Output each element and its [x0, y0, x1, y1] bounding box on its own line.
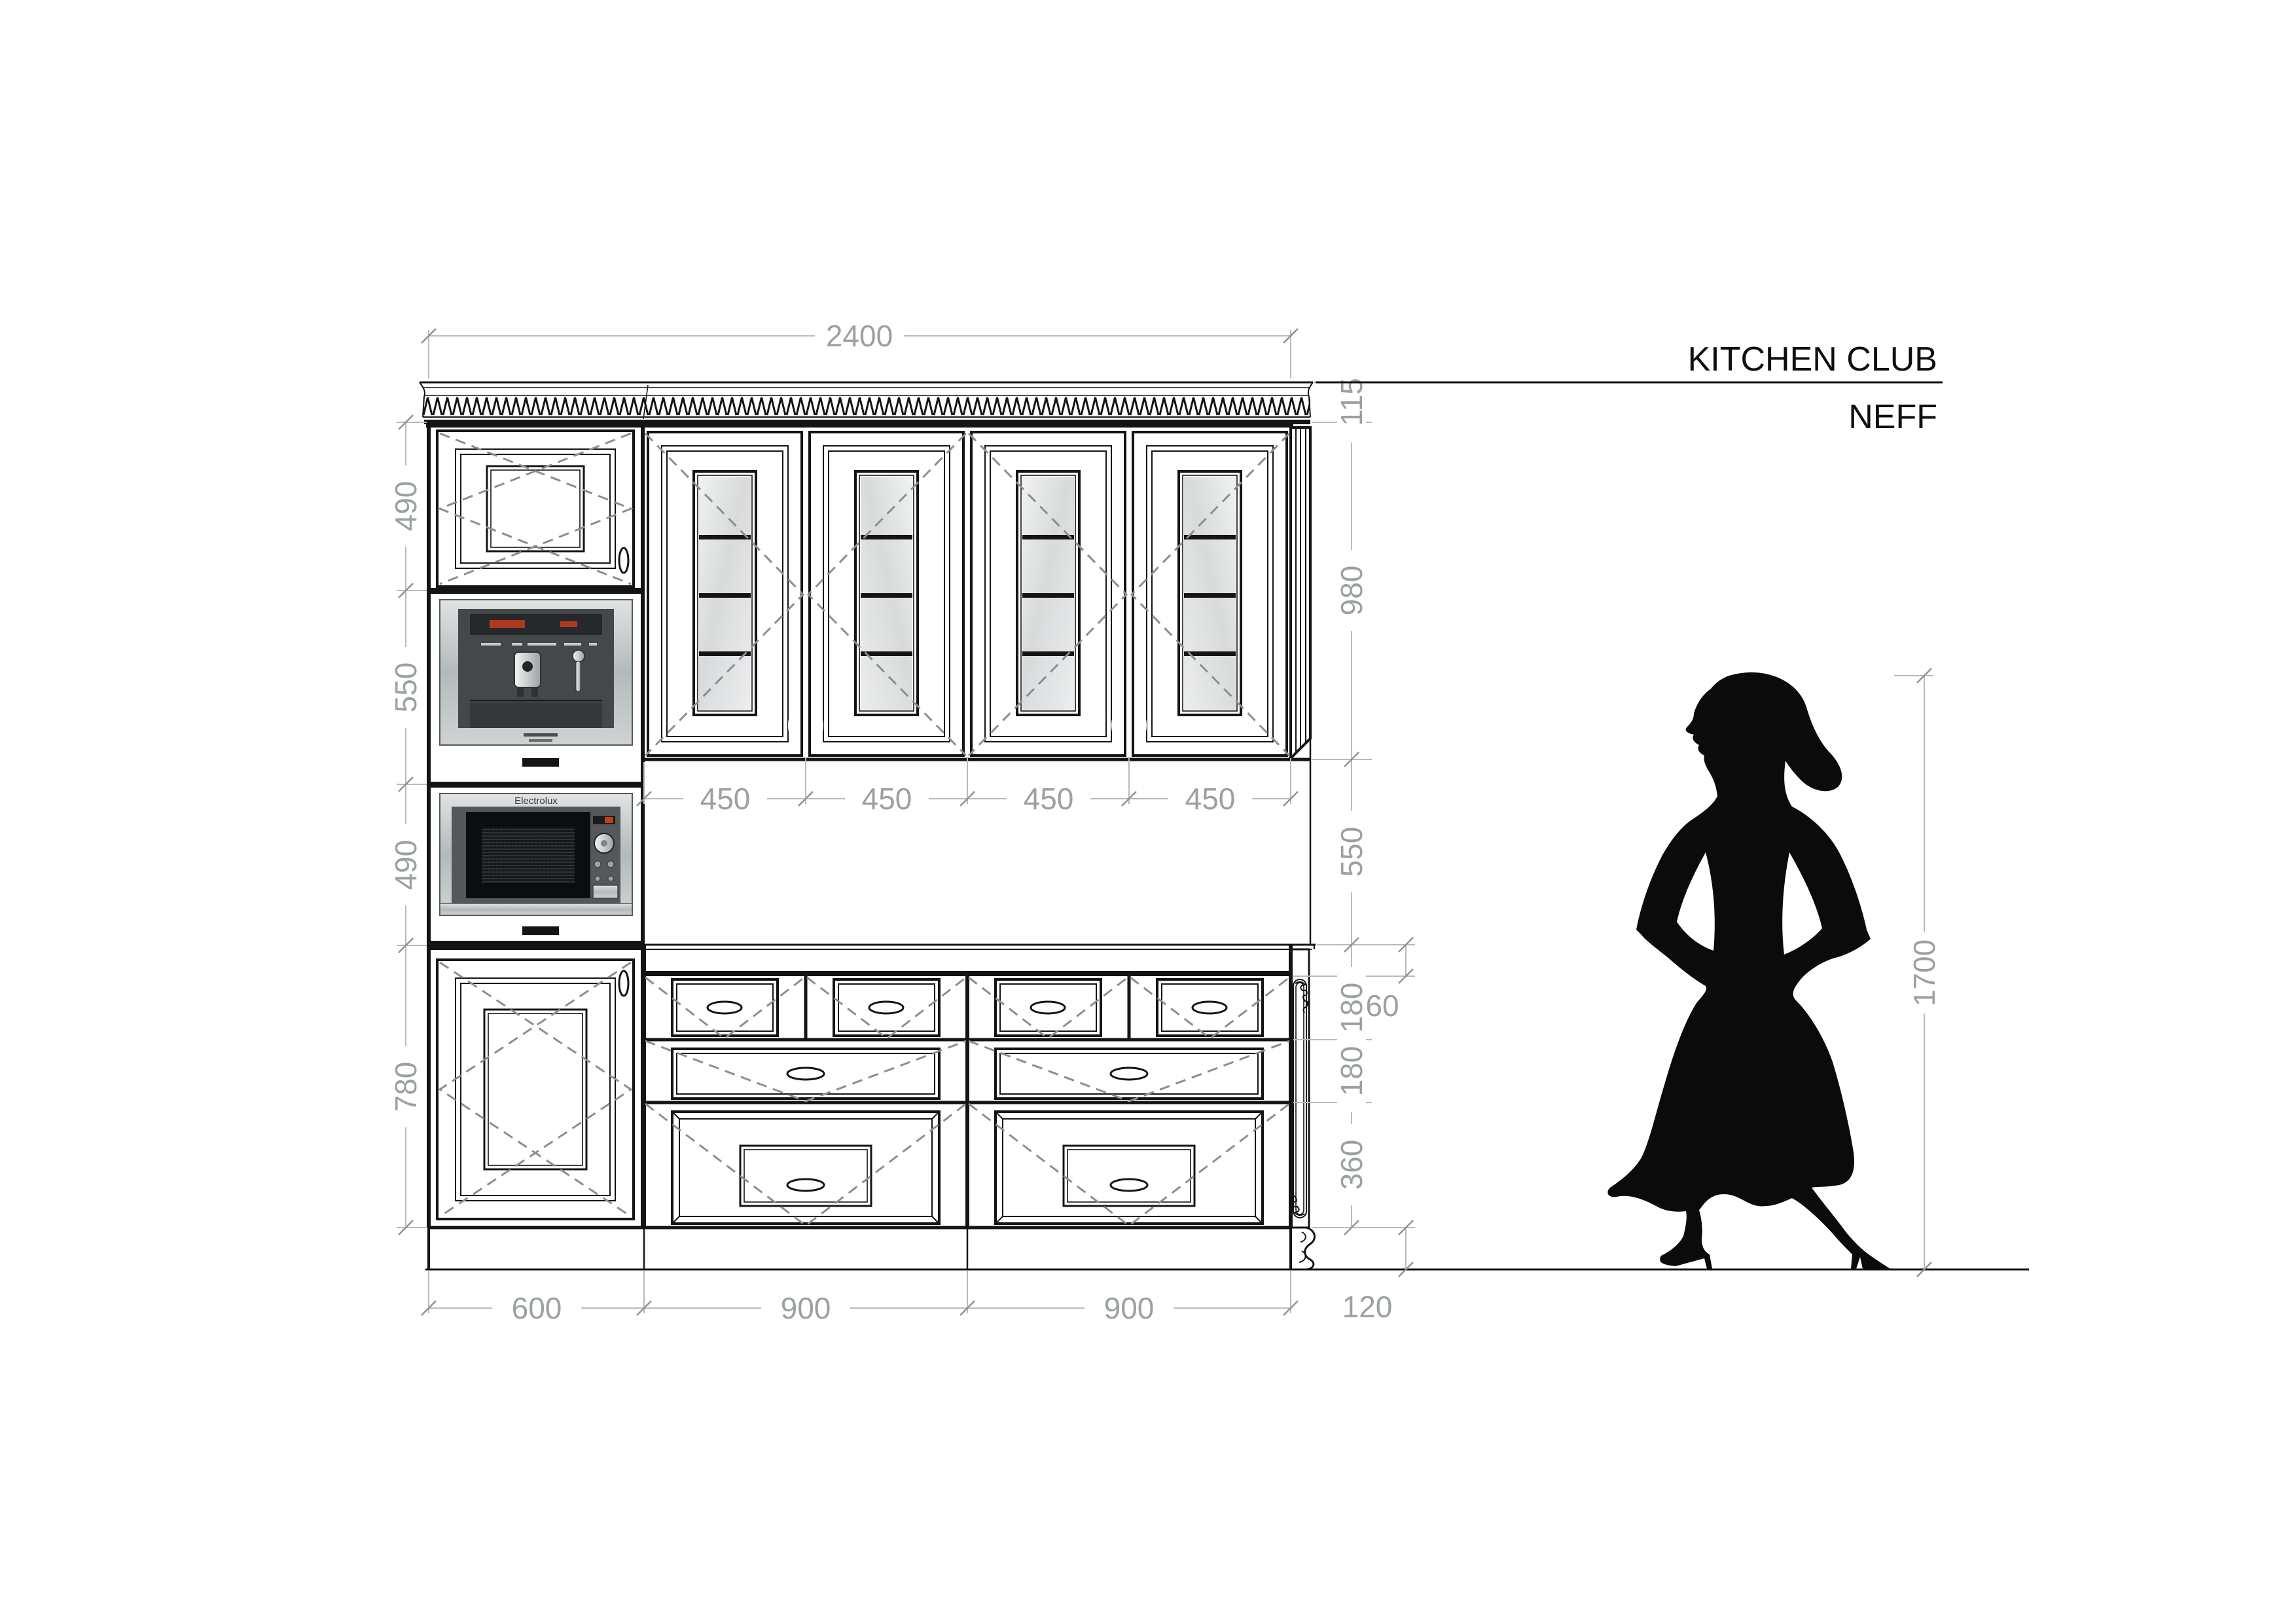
- figure: [1607, 672, 1890, 1269]
- cornice: [420, 382, 1313, 424]
- dim-cornice-height: 115: [1335, 378, 1369, 426]
- dim-wall-door-4: 450: [1185, 782, 1236, 816]
- dim-counter-thickness: 60: [1365, 989, 1399, 1023]
- dim-base-width-3: 900: [1104, 1291, 1155, 1325]
- small-drawer: [996, 979, 1101, 1036]
- dim-wall-door-3: 450: [1024, 782, 1074, 816]
- small-drawer: [834, 979, 939, 1036]
- dim-left-4: 780: [389, 1062, 423, 1112]
- glass-door-2: [810, 432, 963, 756]
- small-drawer: [1157, 979, 1263, 1036]
- dim-figure-height: 1700: [1907, 939, 1941, 1006]
- tall-unit: Electrolux: [429, 422, 643, 1228]
- glass-door-1: [648, 432, 802, 756]
- coffee-machine: [440, 600, 632, 745]
- tall-unit-base-door: [437, 960, 634, 1219]
- dim-wall-door-2: 450: [862, 782, 912, 816]
- microwave-brand-label: Electrolux: [514, 795, 558, 807]
- milk-frother: [573, 650, 584, 662]
- middle-drawer: [996, 1049, 1263, 1099]
- dim-base-width-1: 600: [512, 1291, 562, 1325]
- drawer-strip-handle: [522, 926, 559, 935]
- kitchen-elevation-page: Electrolux: [0, 0, 2296, 1623]
- small-drawer: [672, 979, 778, 1036]
- deep-drawer: [672, 1112, 939, 1224]
- glass-door-4: [1133, 432, 1287, 756]
- dim-wall-door-1: 450: [700, 782, 751, 816]
- brand-name: NEFF: [1848, 398, 1937, 436]
- dim-overall-width: 2400: [826, 319, 893, 353]
- dim-drawer-height-1: 180: [1335, 983, 1369, 1033]
- microwave-handle: [593, 885, 618, 898]
- dim-base-width-2: 900: [781, 1291, 831, 1325]
- woman-silhouette: [1607, 672, 1890, 1269]
- dentil-molding: [423, 396, 1310, 416]
- title-block: KITCHEN CLUB NEFF: [1316, 340, 1943, 436]
- dim-plinth-height: 120: [1342, 1290, 1393, 1324]
- dim-left-1: 490: [389, 481, 423, 532]
- door-handle: [619, 971, 628, 996]
- microwave: Electrolux: [440, 793, 632, 915]
- dim-left-3: 490: [389, 840, 423, 890]
- tall-unit-top-door: [437, 431, 634, 587]
- dim-splashback-height: 550: [1335, 827, 1369, 877]
- dim-left-2: 550: [389, 663, 423, 713]
- dim-drawer-height-2: 180: [1335, 1046, 1369, 1097]
- studio-name: KITCHEN CLUB: [1688, 340, 1937, 378]
- dim-wall-cabinet-height: 980: [1335, 566, 1369, 616]
- carved-end-pilaster: [1291, 949, 1315, 1269]
- door-handle: [619, 548, 628, 573]
- dim-drawer-height-3: 360: [1335, 1140, 1369, 1190]
- deep-drawer: [996, 1112, 1263, 1224]
- kitchen-elevation-drawing: Electrolux: [0, 0, 2296, 1623]
- middle-drawer: [672, 1049, 939, 1099]
- glass-door-3: [971, 432, 1125, 756]
- drawer-strip-handle: [522, 758, 559, 767]
- scroll-foot: [1291, 1228, 1315, 1269]
